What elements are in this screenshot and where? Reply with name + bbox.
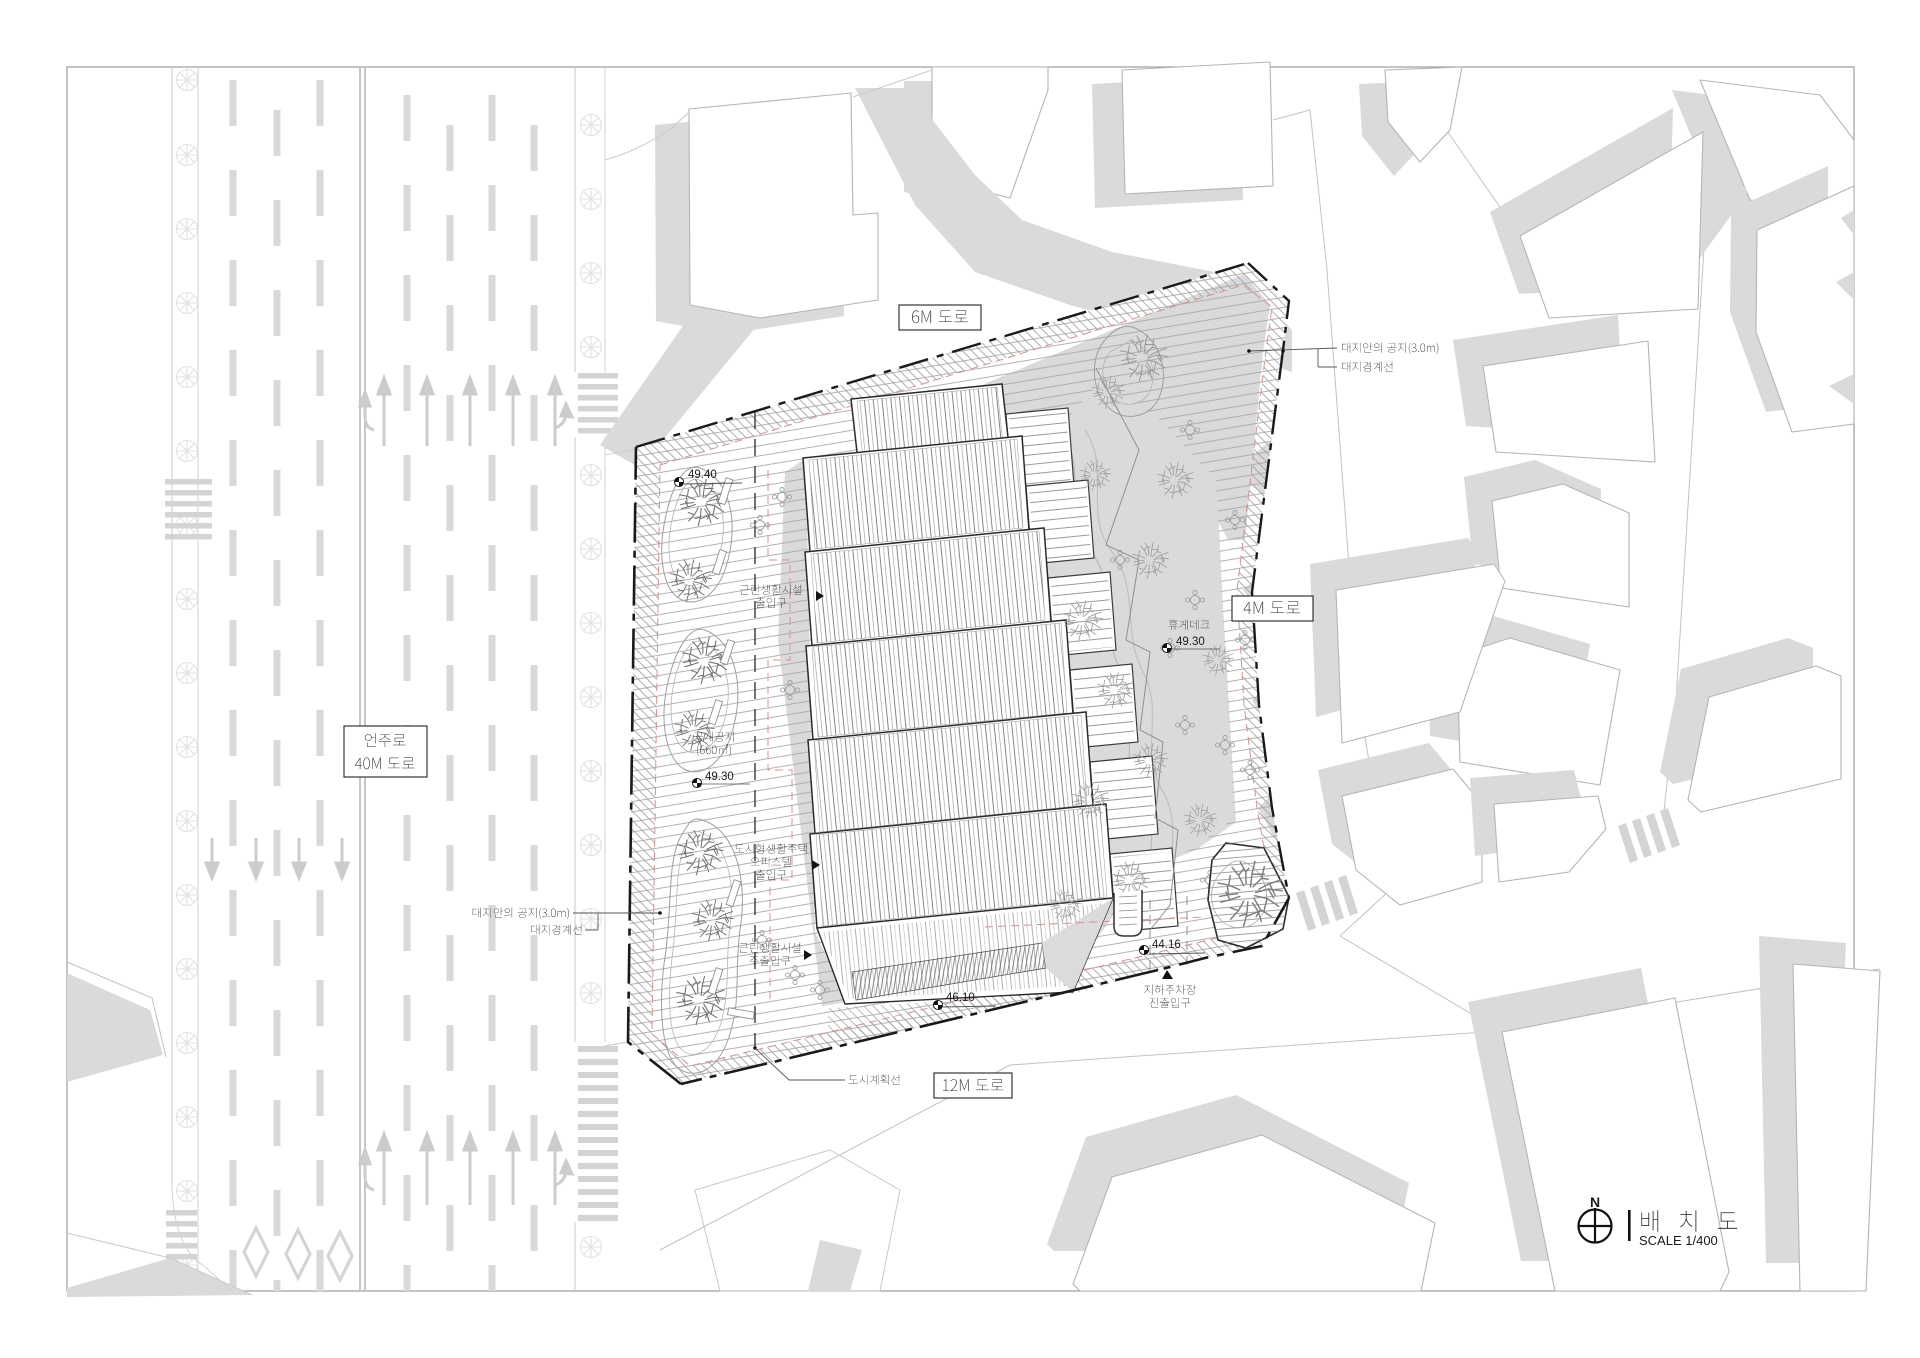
svg-text:49.40: 49.40 — [688, 469, 717, 481]
svg-text:SCALE 1/400: SCALE 1/400 — [1639, 1233, 1718, 1248]
svg-text:49.30: 49.30 — [705, 771, 734, 783]
svg-text:44.16: 44.16 — [1152, 939, 1181, 951]
svg-text:49.30: 49.30 — [1176, 636, 1205, 648]
svg-text:46.10: 46.10 — [946, 992, 975, 1004]
svg-text:N: N — [1590, 1194, 1600, 1210]
